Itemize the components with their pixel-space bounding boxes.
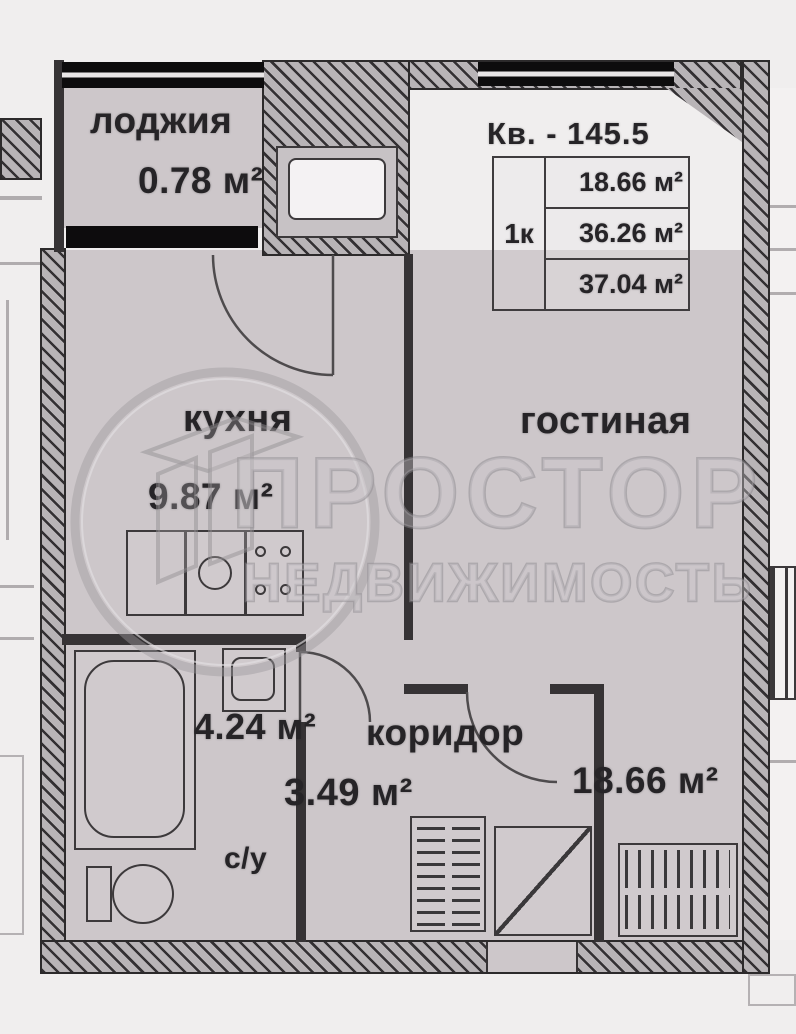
room-area-loggia: 0.78 м² [138,160,263,202]
wall-bathroom-east-upper [296,634,306,652]
wardrobe-slats [452,823,480,926]
bathtub-inner [84,660,185,838]
toilet-tank [86,866,112,922]
wall-kitchen-living [404,254,413,640]
floor-plan-page: { "header": { "apartment": "Кв. - 145.5"… [0,0,796,1034]
stove-burner-icon [280,546,291,557]
neighbor-wall-fragment [0,118,42,180]
toilet-bowl [112,864,174,924]
washbasin [222,648,286,712]
wall-corner-wedge [666,88,742,142]
vent-shaft [288,158,386,220]
info-living-area-cell: 18.66 м² [544,158,688,207]
living-radiator [618,843,738,937]
room-label-bathroom: с/у [224,842,267,876]
neighbor-line [770,248,796,251]
wardrobe [410,816,486,932]
neighbor-line [6,300,9,540]
room-label-corridor: коридор [366,712,524,754]
loggia-wall-left [54,60,64,252]
wall-kitchen-bathroom [62,634,306,645]
info-area-no-loggia-cell: 36.26 м² [544,207,688,258]
stove-burner-icon [255,546,266,557]
neighbor-room-fragment [748,974,796,1006]
bathtub [74,650,196,850]
neighbor-line [0,637,34,640]
neighbor-strip [770,88,796,940]
room-label-loggia: лоджия [90,100,232,142]
hall-cabinet [494,826,592,936]
neighbor-line [0,196,42,200]
radiator-bars [625,850,730,888]
stove-burner-icon [255,584,266,595]
neighbor-line [770,760,796,763]
wall-left [40,248,66,974]
wall-bathroom-east-lower [296,722,306,942]
wardrobe-slats [417,823,445,926]
wall-right [742,60,770,974]
washbasin-bowl [231,657,275,701]
apartment-number-label: Кв. - 145.5 [487,116,650,152]
room-area-kitchen: 9.87 м² [148,476,273,518]
living-window [478,62,674,86]
kitchen-sink-icon [198,556,232,590]
loggia-window [62,62,264,88]
room-area-corridor: 3.49 м² [284,772,413,815]
stove-burner-icon [280,584,291,595]
neighbor-line [0,262,42,265]
wall-corridor-a [404,684,468,694]
wall-bottom [40,940,770,974]
neighbor-line [770,292,796,295]
room-label-kitchen: кухня [183,398,292,441]
counter-divider [184,532,187,614]
neighbor-room-fragment [0,755,24,935]
room-label-living: гостиная [520,400,691,443]
room-area-living: 18.66 м² [572,760,719,802]
counter-divider [244,532,247,614]
loggia-kitchen-window [66,226,258,248]
neighbor-line [0,585,34,588]
room-area-bathroom: 4.24 м² [194,706,316,748]
info-total-area-cell: 37.04 м² [544,258,688,309]
wall-corridor-living [594,684,604,942]
cabinet-diagonal [496,828,590,934]
info-rooms-cell: 1к [494,158,544,309]
apartment-info-table: 1к 18.66 м² 36.26 м² 37.04 м² [492,156,690,311]
neighbor-line [770,205,796,208]
neighbor-radiator [770,566,796,700]
radiator-bars [625,895,730,929]
entrance-doorway [486,942,578,972]
kitchen-counter [126,530,304,616]
